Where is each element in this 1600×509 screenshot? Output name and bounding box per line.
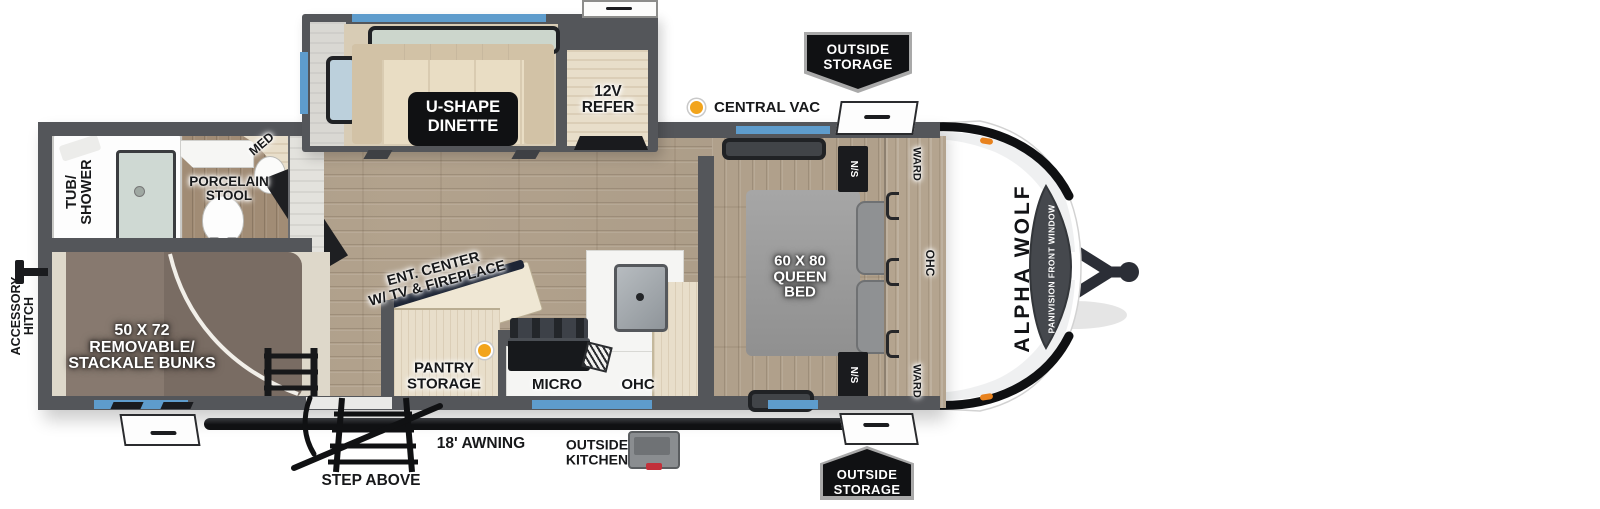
bathroom-bunk-wall — [38, 238, 312, 252]
outside-storage-bottom-banner: OUTSIDE STORAGE — [820, 446, 914, 500]
outside-storage-top-banner: OUTSIDE STORAGE — [804, 32, 912, 93]
pantry-indicator — [476, 342, 493, 359]
dinette-left-arm — [352, 44, 382, 144]
outside-kitchen-unit — [628, 431, 680, 469]
bedroom-partition-wall — [698, 156, 714, 396]
slide-left-window-strip — [300, 52, 308, 114]
label-porcelain-stool: PORCELAIN STOOL — [189, 175, 269, 203]
dinette-label-line: U-SHAPE — [408, 98, 518, 117]
central-vac-indicator — [688, 99, 705, 116]
label-front-window: PANIVISION FRONT WINDOW — [1048, 205, 1057, 334]
bedroom-window-strip — [768, 400, 818, 409]
dresser-handle-1 — [886, 192, 899, 220]
hitch-ball — [1119, 262, 1139, 282]
banner-line: OUTSIDE — [823, 467, 911, 482]
stove-micro — [508, 318, 590, 370]
bedroom-top-window — [722, 138, 826, 160]
dresser-handle-2 — [886, 258, 899, 286]
floorplan-canvas: CENTRAL VAC OUTSIDE STORAGE OUTSIDE — [0, 0, 1600, 509]
banner-line: OUTSIDE — [807, 42, 909, 57]
kitchen-window-strip — [532, 400, 652, 409]
pantry-left-wall — [381, 300, 394, 396]
label-step-above: STEP ABOVE — [321, 473, 420, 489]
label-pantry: PANTRY STORAGE — [407, 360, 481, 391]
dresser-handle-3 — [886, 330, 899, 358]
label-tub-shower: TUB/ SHOWER — [65, 159, 95, 224]
label-ns-top: N/S — [848, 161, 858, 178]
bath-vanity — [180, 140, 254, 168]
wall-mount-1 — [110, 402, 143, 409]
label-ohc-bedroom: OHC — [924, 250, 936, 277]
label-ns-bottom: N/S — [848, 367, 858, 384]
label-ohc-kitchen: OHC — [621, 377, 654, 393]
banner-line: STORAGE — [823, 482, 911, 497]
label-refer: 12V REFER — [582, 84, 635, 116]
label-accessory-hitch: ACCESSORY HITCH — [10, 277, 36, 356]
accessory-hitch-bar — [20, 268, 48, 276]
refer-roof-vent — [582, 0, 658, 18]
label-micro: MICRO — [532, 377, 582, 393]
label-ward-bottom: WARD — [910, 364, 921, 398]
bedroom-top-window-strip — [736, 126, 830, 134]
dinette-right-arm — [524, 44, 554, 144]
dinette-label-box: U-SHAPE DINETTE — [408, 92, 518, 146]
label-queen-bed: 60 X 80 QUEEN BED — [773, 254, 826, 301]
kitchen-sink — [614, 264, 668, 332]
label-awning: 18' AWNING — [437, 436, 525, 452]
wall-mount-2 — [160, 402, 193, 409]
dinette-label-line: DINETTE — [408, 117, 518, 136]
label-central-vac: CENTRAL VAC — [714, 100, 820, 116]
top-storage-door — [835, 101, 918, 135]
rear-wall — [38, 122, 52, 410]
bottom-storage-door — [839, 413, 919, 445]
label-bunks: 50 X 72 REMOVABLE/ STACKALE BUNKS — [68, 323, 215, 373]
toilet — [202, 196, 244, 244]
banner-line: STORAGE — [807, 57, 909, 72]
rear-storage-door — [119, 414, 200, 446]
label-ward-top: WARD — [910, 147, 921, 181]
brand-wordmark: ALPHA WOLF — [1012, 183, 1034, 352]
label-outside-kitchen: OUTSIDE KITCHEN — [566, 437, 628, 466]
refer-divider-wall — [556, 48, 567, 148]
bunk-ladder — [258, 344, 324, 398]
refer-base — [574, 136, 648, 150]
slide-top-window-strip — [352, 14, 546, 22]
